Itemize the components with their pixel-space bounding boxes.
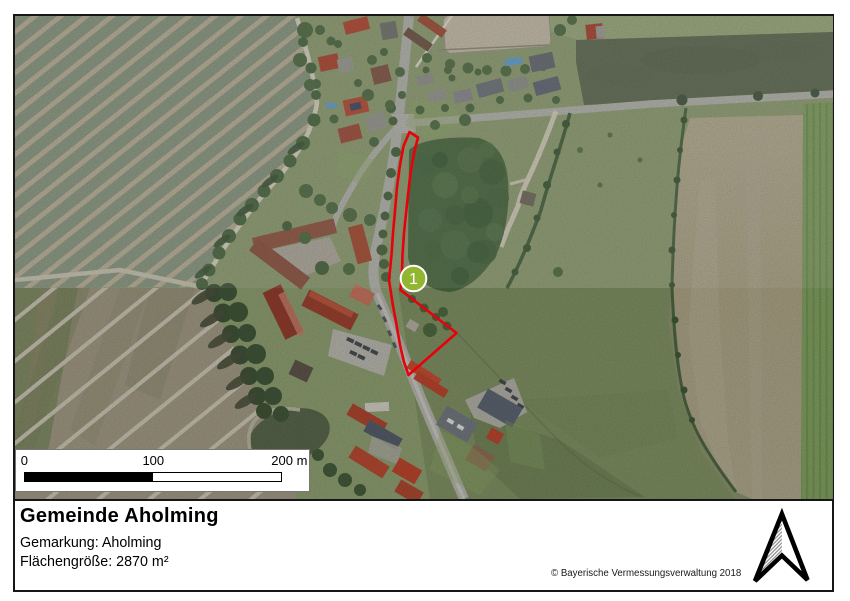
svg-text:1: 1 xyxy=(409,271,418,288)
